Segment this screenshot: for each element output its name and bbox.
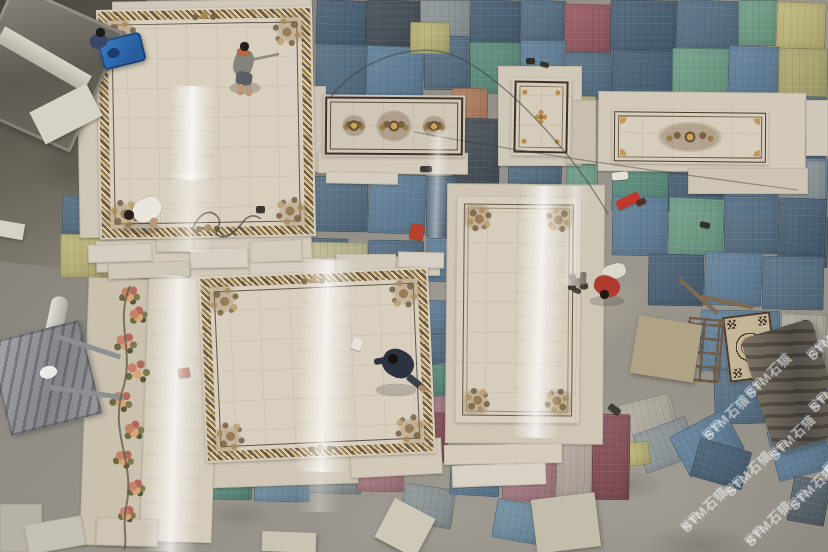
- checkered-corner: [757, 316, 767, 326]
- marble-tile: [250, 239, 303, 263]
- foam-mat: [648, 254, 705, 307]
- marble-tile: [88, 243, 153, 263]
- worker-legs-walking-part: [580, 284, 588, 289]
- floral-inlay: [117, 504, 139, 525]
- foam-mat: [312, 176, 369, 233]
- edge-floral-motif: [298, 274, 328, 287]
- marble-tile: [452, 462, 547, 487]
- machine-operator-navy-part: [96, 28, 105, 37]
- worker-gray-orange-standing-part: [245, 85, 251, 96]
- marble-tile: [806, 100, 828, 156]
- corner-floral-motif: [533, 377, 571, 415]
- corner-floral-motif: [212, 407, 260, 455]
- worker-gray-orange-standing-part: [238, 84, 244, 95]
- foam-mat: [470, 0, 523, 44]
- worker-red-bending-part: [600, 290, 609, 299]
- foam-mat: [410, 22, 451, 55]
- floral-inlay: [122, 356, 156, 386]
- gold-corner-dot: [555, 90, 560, 95]
- worker-navy-crouching-part: [388, 354, 398, 364]
- corner-floral-motif: [374, 275, 422, 323]
- gold-corner-dot: [522, 90, 527, 95]
- gold-corner-dot: [522, 139, 527, 144]
- scrollwork-medallion: [658, 122, 722, 153]
- debris-item: [409, 223, 426, 241]
- watermark-text: STM石猫: [742, 497, 796, 551]
- corner-floral-motif: [206, 283, 254, 331]
- wooden-crate: [262, 531, 317, 552]
- foam-mat: [775, 1, 827, 51]
- corner-floral-motif: [465, 205, 503, 243]
- small-framed-panel: [510, 77, 571, 156]
- debris-item: [526, 58, 535, 64]
- foam-mat: [777, 197, 827, 259]
- watermark-text: STM石猫: [678, 483, 732, 537]
- debris-item: [420, 166, 432, 172]
- gold-corner-fan: [752, 119, 760, 127]
- foam-mat: [667, 197, 725, 257]
- marble-tile: [108, 261, 191, 280]
- edge-floral-motif: [305, 442, 335, 455]
- marble-tile: [398, 252, 444, 269]
- debris-item: [612, 171, 629, 180]
- edge-floral-motif: [193, 223, 223, 236]
- debris-item: [256, 206, 265, 213]
- checkered-corner: [727, 320, 737, 330]
- foam-mat: [315, 0, 369, 47]
- gold-corner-fan: [620, 117, 628, 125]
- edge-floral-motif: [189, 11, 219, 24]
- worker-gray-orange-standing-part: [240, 42, 249, 51]
- wooden-crate: [531, 492, 601, 552]
- corner-floral-motif: [258, 14, 305, 61]
- corner-floral-motif: [463, 377, 501, 415]
- foam-mat: [610, 0, 679, 53]
- wooden-crate: [630, 315, 702, 382]
- foam-mat: [762, 255, 825, 310]
- checkered-corner: [733, 368, 743, 378]
- foam-mat: [564, 4, 613, 55]
- corner-floral-motif: [261, 182, 308, 229]
- foam-mat: [519, 0, 566, 43]
- marble-tile: [190, 247, 248, 268]
- scrollwork-medallion: [376, 110, 412, 142]
- debris-item: [177, 367, 191, 379]
- marble-tile: [688, 168, 808, 194]
- foam-mat: [727, 45, 781, 97]
- worker-legs-walking-part: [568, 285, 576, 290]
- gold-center-motif: [535, 110, 547, 124]
- medallion-strip-panel-center: [323, 94, 466, 157]
- vertical-panel-center-right: [455, 196, 581, 423]
- worker-white-crouching-part: [124, 210, 134, 220]
- foam-mat: [738, 0, 778, 46]
- corner-floral-motif: [535, 205, 573, 243]
- gold-corner-fan: [752, 149, 760, 157]
- floral-inlay: [125, 477, 149, 499]
- long-medallion-panel-right: [612, 109, 768, 164]
- worker-navy-crouching-part: [376, 384, 416, 396]
- corner-floral-motif: [380, 399, 428, 447]
- gold-corner-dot: [555, 139, 560, 144]
- foam-mat: [675, 0, 741, 51]
- foam-mat: [723, 196, 778, 255]
- floral-inlay: [120, 416, 150, 444]
- workshop-floor-aerial-photo: 回回STM石猫回回STM石猫回回STM石猫回回STM石猫回回STM石猫回回STM…: [0, 0, 828, 552]
- gold-corner-fan: [620, 147, 628, 155]
- scrollwork-medallion: [422, 115, 446, 137]
- marble-tile: [326, 171, 398, 184]
- marble-tile: [156, 238, 194, 253]
